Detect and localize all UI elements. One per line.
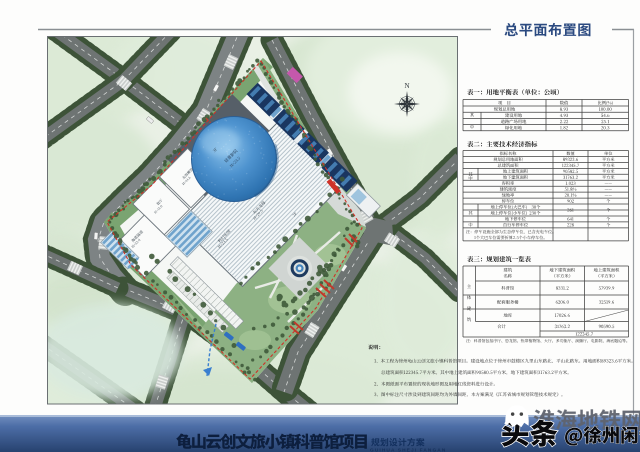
svg-text:GUIHUA SHEJI FANGAN: GUIHUA SHEJI FANGAN <box>370 448 446 452</box>
svg-text:N: N <box>404 82 409 90</box>
